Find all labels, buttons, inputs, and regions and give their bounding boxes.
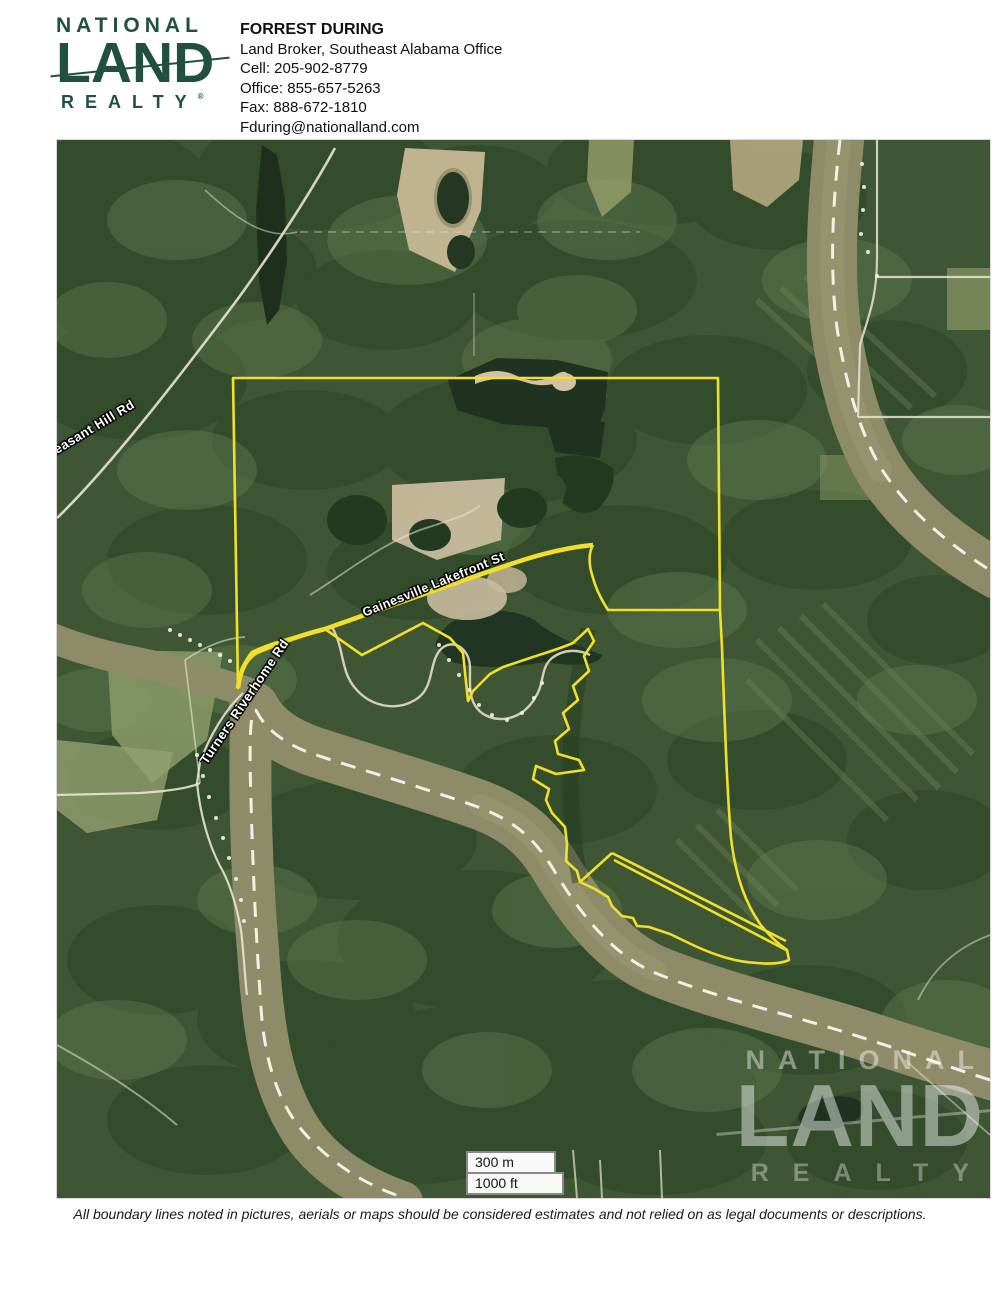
broker-contact-block: FORREST DURING Land Broker, Southeast Al… [240, 20, 502, 137]
logo-word-land: LAND [56, 36, 214, 90]
broker-cell: Cell: 205-902-8779 [240, 59, 502, 79]
broker-name: FORREST DURING [240, 20, 502, 40]
logo-word-realty: REALTY® [56, 92, 246, 113]
aerial-map-graphic [57, 140, 990, 1198]
broker-email: Fduring@nationalland.com [240, 118, 502, 138]
broker-office: Office: 855-657-5263 [240, 79, 502, 99]
scale-imperial: 1000 ft [466, 1172, 564, 1195]
map-scale-bar: 300 m 1000 ft [466, 1151, 564, 1195]
listing-flyer-page: NATIONAL LAND REALTY® FORREST DURING Lan… [0, 0, 1000, 1294]
scale-metric: 300 m [466, 1151, 556, 1174]
broker-title: Land Broker, Southeast Alabama Office [240, 40, 502, 60]
broker-fax: Fax: 888-672-1810 [240, 98, 502, 118]
national-land-realty-logo: NATIONAL LAND REALTY® [56, 14, 246, 113]
aerial-map: t Pleasant Hill Rd Turners Riverhome Rd … [57, 140, 990, 1198]
boundary-disclaimer: All boundary lines noted in pictures, ae… [0, 1206, 1000, 1222]
